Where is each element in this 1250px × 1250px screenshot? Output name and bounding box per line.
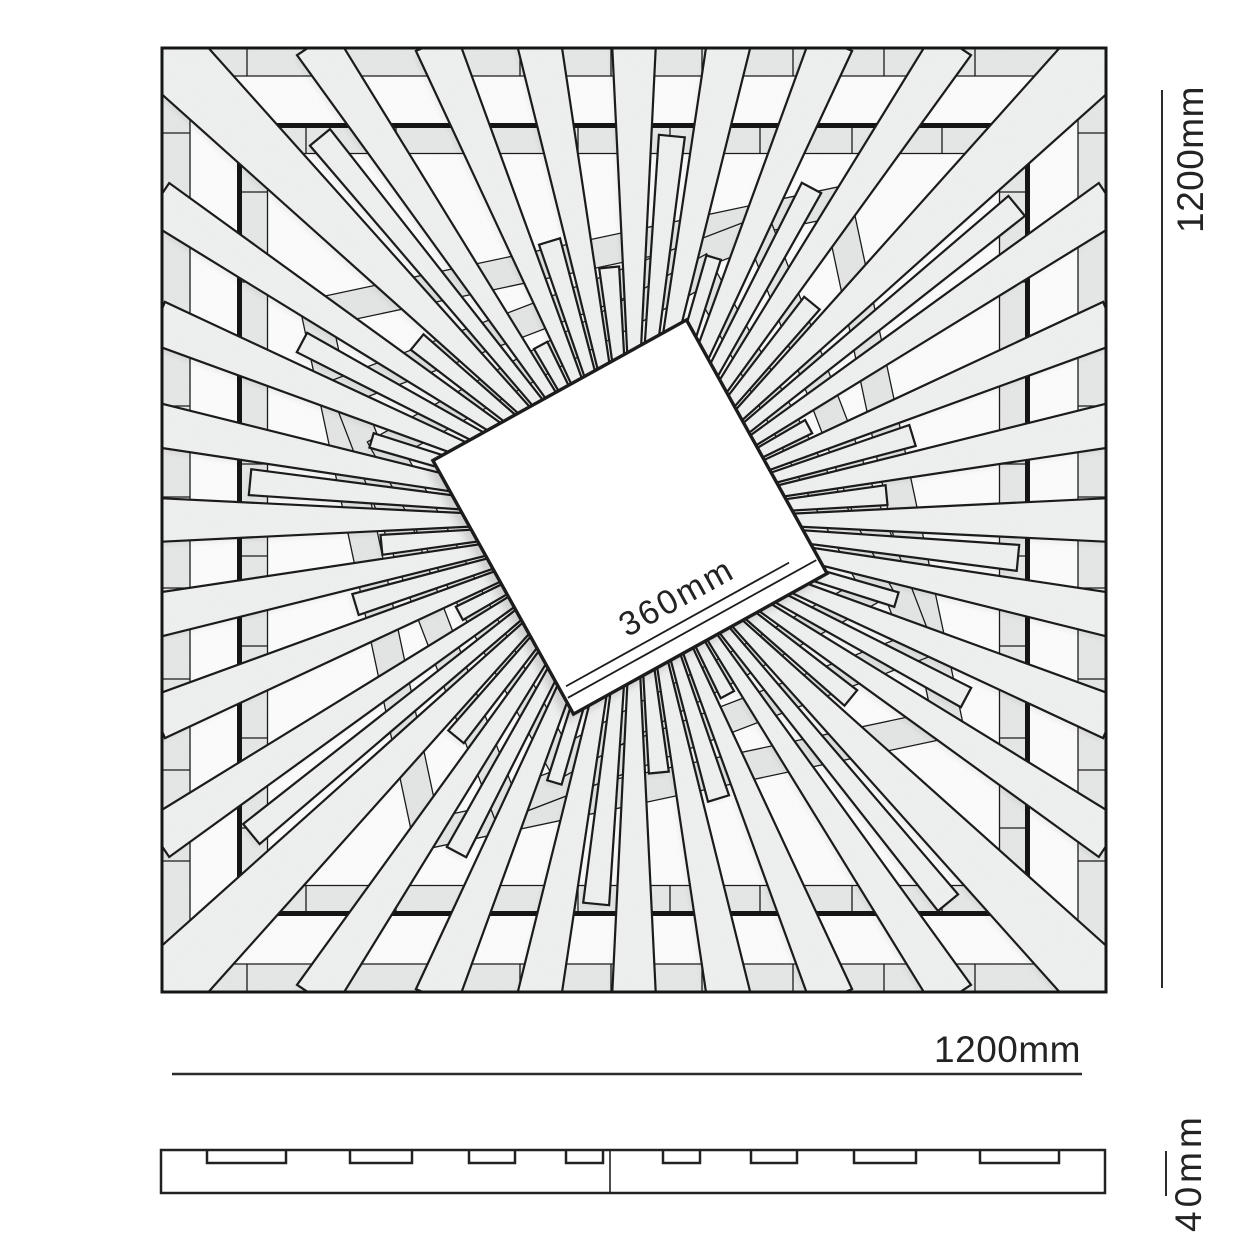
svg-text:40mm: 40mm: [1168, 1113, 1209, 1232]
svg-text:1200mm: 1200mm: [934, 1029, 1081, 1070]
svg-text:1200mm: 1200mm: [1170, 86, 1211, 233]
